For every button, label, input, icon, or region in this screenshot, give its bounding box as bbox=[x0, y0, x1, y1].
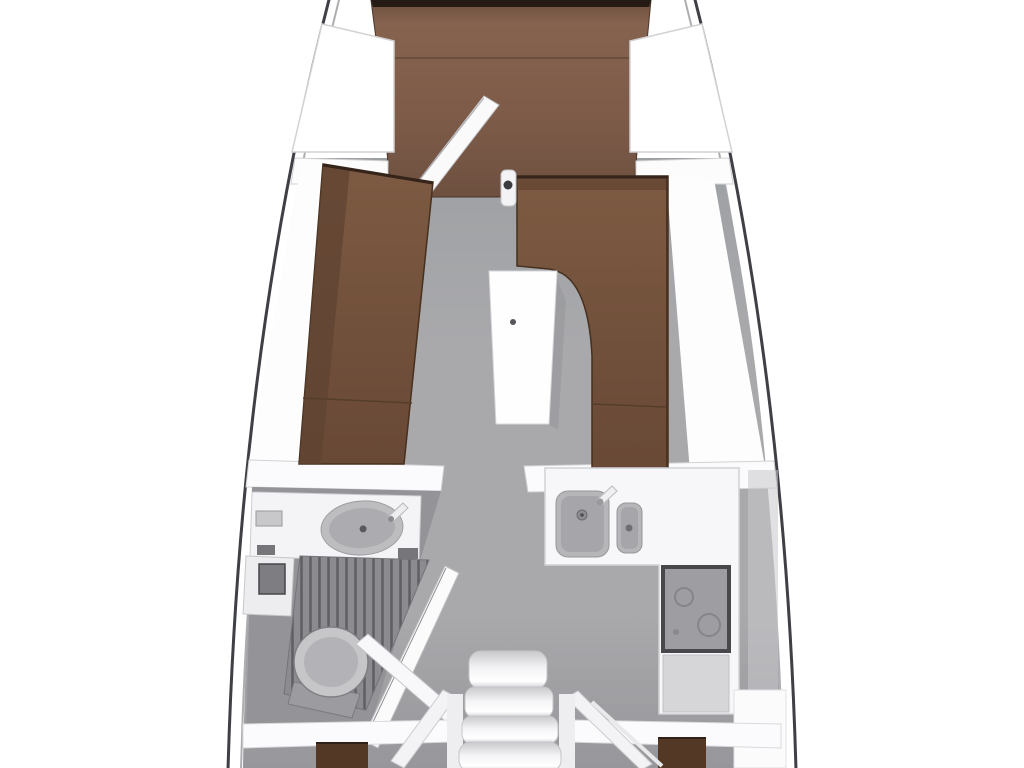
stove bbox=[663, 567, 729, 651]
step-1 bbox=[469, 651, 547, 689]
galley-sink-large-drain-dot bbox=[580, 513, 584, 517]
vanity-soap-dish bbox=[256, 511, 282, 526]
step-3 bbox=[462, 716, 558, 744]
v-berth-head-edge bbox=[371, 0, 651, 7]
stove-top bbox=[663, 567, 729, 651]
boat-floor-plan bbox=[0, 0, 1024, 768]
bow-shelf-starboard bbox=[630, 24, 732, 152]
mast-post-cap bbox=[504, 181, 513, 190]
mast-post bbox=[501, 170, 516, 206]
galley-sink-small bbox=[617, 503, 642, 553]
v-berth bbox=[371, 0, 651, 197]
floor-plan-canvas bbox=[0, 0, 1024, 768]
step-2 bbox=[465, 687, 553, 718]
stove-knob bbox=[673, 629, 679, 635]
bow-shelf-port bbox=[292, 24, 394, 152]
aft-starboard-berth bbox=[658, 737, 706, 768]
vanity-fitting-right bbox=[398, 548, 418, 559]
table-fitting-dot bbox=[510, 319, 516, 325]
vanity-fitting-left bbox=[257, 545, 275, 555]
galley-sink-small-drain bbox=[626, 525, 633, 532]
aft-port-berth-cushion bbox=[316, 742, 368, 768]
step-4 bbox=[459, 742, 561, 768]
aft-starboard-berth-cushion bbox=[658, 737, 706, 768]
head-cabinet-hatch bbox=[259, 564, 285, 594]
galley-lower-panel bbox=[663, 655, 729, 712]
aft-port-berth bbox=[316, 742, 368, 768]
v-berth-cushion bbox=[371, 0, 651, 197]
toilet-seat bbox=[304, 637, 358, 687]
table-top bbox=[489, 271, 557, 424]
saloon-table bbox=[489, 271, 566, 430]
galley-faucet-base bbox=[597, 499, 604, 506]
head-faucet-base bbox=[388, 516, 394, 522]
